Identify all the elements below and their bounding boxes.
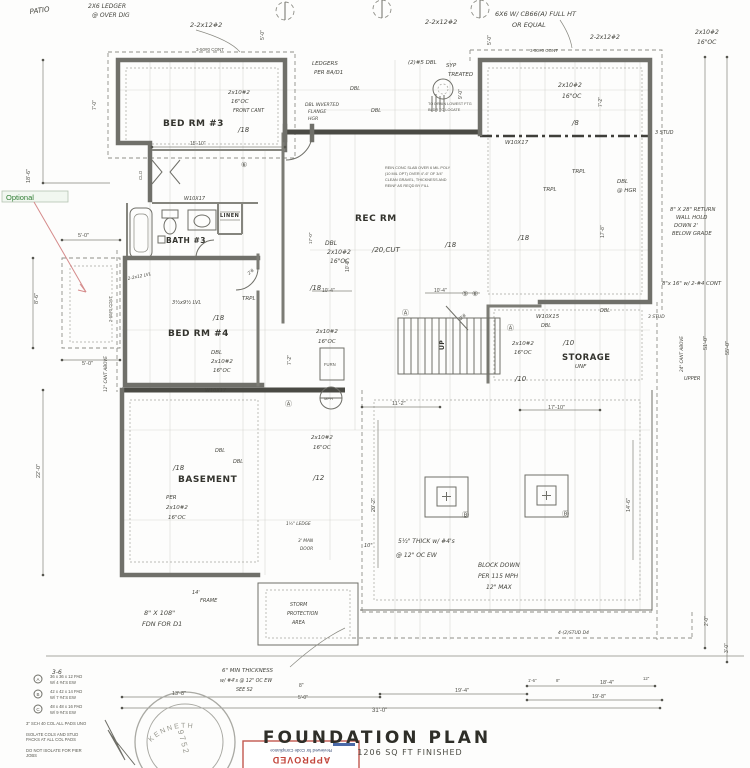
dim-5-0-t1: 5'-0" bbox=[260, 30, 266, 40]
sheet-title: FOUNDATION PLAN bbox=[263, 728, 491, 748]
stairs bbox=[398, 306, 500, 374]
legend-note-col: 3" SCH 40 COL ALL PADS UNO bbox=[26, 721, 87, 726]
note-joist-bed3-1: 2x10#2 bbox=[228, 90, 250, 96]
note-return-4: BELOW GRADE bbox=[672, 231, 712, 237]
dim-3-0: 3'-0" bbox=[724, 643, 730, 653]
mark-18-rec-left: /18 bbox=[309, 284, 322, 292]
room-furn: FURN bbox=[324, 362, 336, 367]
note-hgr-3: HGR bbox=[308, 116, 318, 122]
mark-18-bed4: /18 bbox=[212, 314, 225, 322]
mark-circ-6: ⑥ bbox=[241, 161, 247, 169]
optional-callout: Optional bbox=[2, 191, 86, 292]
note-joist-f-2: 16"OC bbox=[318, 339, 336, 345]
note-storm-1: STORM bbox=[290, 602, 308, 608]
dimension-ticks bbox=[32, 56, 729, 710]
dim-17-0: 17'-0" bbox=[308, 232, 313, 244]
note-slab-4: REINF AS REQD BY FILL bbox=[385, 184, 429, 188]
dimension-lines bbox=[32, 56, 744, 710]
note-beam-tc: 2-2x12#2 bbox=[425, 18, 457, 26]
note-return-3: DOWN 2' bbox=[674, 223, 698, 229]
note-storm-3: AREA bbox=[291, 620, 305, 626]
foundation-plan-drawing: Optional A 36 x 36 x 12 PAD W/ 4 #4'S EW… bbox=[0, 0, 750, 768]
note-post-2: OR EQUAL bbox=[512, 21, 546, 29]
note-syp-1: SYP bbox=[446, 63, 457, 69]
mark-circ-b1: Ⓑ bbox=[462, 511, 469, 519]
dim-5-0-t2: 5'-0" bbox=[487, 35, 493, 45]
note-trpl-2: TRPL bbox=[543, 187, 557, 193]
mark-12-c: /12 bbox=[312, 474, 325, 482]
room-storage: STORAGE bbox=[562, 353, 611, 363]
engineer-seal: KENNETH 9752 bbox=[135, 692, 235, 768]
note-fdn-2: FDN FOR D1 bbox=[142, 620, 182, 628]
note-joist-st-1: 2x10#2 bbox=[512, 341, 534, 347]
note-sump-1: TO DRAIN LOWEST FTG bbox=[428, 102, 472, 106]
note-per-2: 2x10#2 bbox=[166, 505, 188, 511]
legend-mark-a: A bbox=[36, 677, 39, 682]
note-dbl-st-2: DBL bbox=[600, 308, 610, 314]
mark-18-rec-mid: /18 bbox=[444, 241, 457, 249]
note-joist-rec-1: 2x10#2 bbox=[558, 82, 582, 89]
dim-18-6: 18'-6" bbox=[26, 169, 32, 183]
note-slab-1: REIN CONC SLAB OVER 6 MIL POLY bbox=[385, 166, 451, 170]
note-cont-patio: 2-50#0 CONT bbox=[108, 295, 113, 322]
dim-12-a: 12" bbox=[643, 676, 650, 681]
dim-1-6: 1'-6" bbox=[528, 678, 537, 683]
optional-arrow bbox=[34, 202, 86, 292]
note-slab-2: (10 MIL OPT) OVER 4"-6" OF 3/4" bbox=[385, 172, 444, 176]
approved-stamp-subtitle: Reviewed for Code Compliance bbox=[270, 748, 332, 753]
mark-circ-b2: Ⓑ bbox=[562, 510, 569, 518]
legend-mark-b: B bbox=[36, 692, 39, 697]
note-syp-2: TREATED bbox=[448, 72, 473, 78]
note-trpl-1: TRPL bbox=[572, 169, 586, 175]
mark-circ-a1: Ⓐ bbox=[402, 309, 409, 317]
note-storm-2: PROTECTION bbox=[287, 611, 318, 617]
note-joist-f-1: 2x10#2 bbox=[316, 329, 338, 335]
legend-a-line2: W/ 4 #4'S EW bbox=[50, 680, 76, 685]
mark-8-rec: /8 bbox=[571, 119, 579, 127]
dim-10-4-a: 10'-4" bbox=[322, 288, 335, 294]
legend-c-line1: 48 x 48 x 16 PAD bbox=[50, 704, 82, 709]
note-block-2: PER 115 MPH bbox=[478, 573, 519, 580]
dim-55-0: 55'-0" bbox=[725, 341, 731, 355]
note-lvl-2: 2-2x12 LVL bbox=[127, 271, 152, 282]
note-3stud-top: 3 STUD bbox=[655, 130, 674, 136]
note-block-1: BLOCK DOWN bbox=[478, 562, 520, 569]
dim-bed3-width: 15'-10" bbox=[190, 141, 206, 147]
note-ledger-2: @ OVER DIG bbox=[92, 12, 130, 19]
note-joist-tr-2: 16"OC bbox=[697, 39, 717, 46]
note-joist-st-2: 16"OC bbox=[514, 350, 532, 356]
note-ledger-1: 2X6 LEDGER bbox=[88, 3, 126, 10]
footing-dashed-lines bbox=[62, 50, 692, 640]
note-hgr-2: FLANGE bbox=[308, 109, 326, 115]
note-per-1: PER bbox=[166, 495, 177, 501]
note-joist-tr-1: 2x10#2 bbox=[695, 29, 719, 36]
note-3stud-r: 3 STUD bbox=[648, 314, 665, 320]
dim-19-8: 19'-8" bbox=[592, 694, 606, 700]
sheet-subtitle: 1206 SQ FT FINISHED bbox=[357, 748, 462, 757]
note-cant-r: 24" CANT ABOVE bbox=[679, 336, 684, 372]
note-beam-tl: 2-2x12#2 bbox=[190, 21, 222, 29]
dim-2-0: 2'-0" bbox=[704, 616, 710, 626]
optional-tag-label: Optional bbox=[6, 193, 34, 202]
mark-mph: MPH bbox=[324, 396, 333, 401]
dim-7-2-b: 7'-2" bbox=[287, 355, 293, 365]
note-joist-c-1: 2x10#2 bbox=[311, 435, 333, 441]
note-patio: PATIO bbox=[29, 5, 50, 16]
room-bed4: BED RM #4 bbox=[168, 329, 229, 339]
note-3-6: 3-6 bbox=[52, 669, 62, 676]
note-dbl-rec-1: DBL bbox=[325, 240, 337, 247]
note-w10x17-bath: W10X17 bbox=[184, 196, 206, 202]
note-14ft: 14' bbox=[192, 590, 200, 596]
note-block-3: 12" MAX bbox=[486, 584, 513, 591]
note-ledge: 1½" LEDGE bbox=[286, 520, 311, 527]
dim-5-0-a: 5'-0" bbox=[78, 233, 89, 239]
note-upper: UPPER bbox=[684, 376, 700, 382]
note-dbl-rec-2: 2x10#2 bbox=[327, 249, 351, 256]
note-joist-bed3-3: FRONT CANT bbox=[233, 108, 265, 114]
mark-18-bed3: /18 bbox=[237, 126, 250, 134]
note-trpl-3: TRPL bbox=[242, 296, 256, 302]
note-per-3: 16"OC bbox=[168, 515, 186, 521]
note-thick-3: SEE S2 bbox=[236, 687, 253, 693]
note-w10x17-base: W10X17 bbox=[205, 388, 227, 394]
note-dbl-bed4-3: 16"OC bbox=[213, 368, 231, 374]
dim-11-2: 11'-2" bbox=[392, 401, 406, 407]
note-joist-c-2: 16"OC bbox=[313, 445, 331, 451]
footing-pads bbox=[425, 475, 568, 517]
note-cont-tr: 3-50#0 CONT bbox=[530, 48, 558, 53]
note-studs-br: 4-(2)STUD D4 bbox=[558, 630, 589, 636]
legend-mark-c: C bbox=[36, 707, 40, 712]
note-cant-patio: 12" CANT ABOVE bbox=[103, 356, 108, 392]
note-return-2: WALL HOLD bbox=[676, 215, 707, 221]
note-dbl-2: DBL bbox=[371, 108, 381, 114]
mark-circ-6b: ⑥ bbox=[472, 290, 478, 298]
dim-20-2: 20'-2" bbox=[371, 498, 377, 512]
note-hgr-1: DBL INVERTED bbox=[305, 102, 339, 108]
mark-10-st-2: /10 bbox=[514, 375, 527, 383]
legend-c-line2: W/ 9 #4'S EW bbox=[50, 710, 76, 715]
seal-number: 9752 bbox=[176, 729, 191, 756]
note-dbl-hgr-2: @ HGR bbox=[617, 188, 637, 194]
note-8x16: 8"x 16" w/ 2-#4 CONT bbox=[662, 281, 722, 287]
dim-10-4-b: 10'-4" bbox=[434, 288, 447, 294]
mark-18-rec-right: /18 bbox=[517, 234, 530, 242]
dim-9-0: 9'-0" bbox=[458, 89, 464, 99]
note-dbl-bed4-1: DBL bbox=[211, 350, 222, 356]
note-mandoor-2: DOOR bbox=[300, 546, 313, 552]
note-clo: CLO bbox=[138, 170, 143, 180]
note-post-1: 6X6 W/ CB66(A) FULL HT bbox=[495, 10, 577, 18]
dim-18-4: 18'-4" bbox=[600, 680, 614, 686]
legend-b-line2: W/ 7 #4'S EW bbox=[50, 695, 76, 700]
note-joist-bed3-2: 16"OC bbox=[231, 99, 249, 105]
mark-circ-a3: Ⓐ bbox=[285, 400, 292, 408]
note-cont-tl: 3-50#0 CONT bbox=[196, 47, 224, 52]
note-w10x17-rec: W10X17 bbox=[505, 140, 529, 146]
mark-10-st-1: /10 bbox=[562, 339, 575, 347]
dim-51-0: 51'-0" bbox=[703, 336, 709, 350]
room-up: UP bbox=[439, 340, 446, 350]
dim-10-0: 10'-0" bbox=[345, 259, 351, 272]
legend-note-iso2: PACKS AT ALL COL PADS bbox=[26, 737, 76, 742]
note-slab2-1: 5½" THICK w/ #4's bbox=[398, 538, 455, 545]
dim-31-0: 31'-0" bbox=[372, 708, 387, 714]
note-w10x15: W10X15 bbox=[536, 314, 560, 320]
note-ledgers-2: PER 8A/D1 bbox=[314, 70, 343, 76]
dim-7-0: 7'-0" bbox=[92, 100, 98, 110]
dim-13-8: 13'-8" bbox=[172, 691, 186, 697]
note-storage-unf: UNF bbox=[575, 364, 587, 370]
room-bed3: BED RM #3 bbox=[163, 119, 224, 129]
dim-22-0: 22'-0" bbox=[36, 464, 42, 478]
note-dbl-1: DBL bbox=[350, 86, 360, 92]
note-ledgers-1: LEDGERS bbox=[312, 61, 338, 67]
room-linen: LINEN bbox=[220, 213, 239, 219]
note-10in: 10" bbox=[364, 543, 373, 549]
dim-14-6: 14'-6" bbox=[626, 498, 632, 512]
mark-20cut: /20,CUT bbox=[371, 246, 401, 254]
note-return-1: 8" X 28" RETURN bbox=[670, 207, 715, 213]
note-thick-2: w/ #4's @ 12" OC EW bbox=[220, 678, 272, 684]
note-slab2-2: @ 12" OC EW bbox=[396, 552, 438, 559]
legend-note-pier2: JOBS bbox=[26, 753, 37, 758]
note-dbl-st-1: DBL bbox=[541, 323, 551, 329]
note-dbl-base-1: DBL bbox=[215, 448, 225, 454]
floor-drain-icon bbox=[158, 236, 165, 243]
dim-8-b: 8" bbox=[299, 683, 304, 689]
dim-19-4: 19'-4" bbox=[455, 688, 469, 694]
dim-8-6: 8'-6" bbox=[34, 293, 40, 304]
dim-8-a: 8" bbox=[556, 678, 560, 683]
note-slab-3: CLEAN GRAVEL, THICKNESS AND bbox=[385, 178, 447, 182]
mark-circ-5: ⑤ bbox=[462, 290, 468, 298]
mark-18-base: /18 bbox=[172, 464, 185, 472]
approved-stamp-title: APPROVED bbox=[272, 755, 331, 765]
sink-icon bbox=[194, 215, 210, 227]
mark-circ-a2: Ⓐ bbox=[507, 324, 514, 332]
room-bath3: BATH #3 bbox=[166, 236, 206, 245]
note-25dbl: (2)#5 DBL bbox=[408, 60, 437, 66]
note-sump-2: BLDR TO LOCATE bbox=[428, 108, 461, 112]
foundation-plan-sheet: Optional A 36 x 36 x 12 PAD W/ 4 #4'S EW… bbox=[0, 0, 750, 768]
legend-b-line1: 42 x 42 x 14 PAD bbox=[50, 689, 82, 694]
note-dbl-bed4-2: 2x10#2 bbox=[211, 359, 233, 365]
dim-5-0-b: 5'-0" bbox=[82, 361, 93, 367]
room-rec: REC RM bbox=[355, 214, 397, 224]
note-mandoor-1: 3' MAN bbox=[298, 538, 314, 544]
note-thick-1: 6" MIN THICKNESS bbox=[222, 668, 273, 674]
dim-17-8: 17'-8" bbox=[600, 225, 606, 238]
note-joist-rec-2: 16"OC bbox=[562, 93, 582, 100]
note-frame: FRAME bbox=[200, 598, 218, 604]
note-dbl-hgr-1: DBL bbox=[617, 179, 628, 185]
pad-legend: A 36 x 36 x 12 PAD W/ 4 #4'S EW B 42 x 4… bbox=[26, 674, 87, 758]
note-beam-tr: 2-2x12#2 bbox=[590, 34, 620, 41]
signature-squiggle bbox=[105, 720, 135, 765]
note-fdn-1: 8" X 108" bbox=[144, 609, 175, 617]
dim-5-0-c: 5'-0" bbox=[298, 695, 308, 701]
room-basement: BASEMENT bbox=[178, 475, 238, 485]
dim-17-10: 17'-10" bbox=[548, 405, 565, 411]
note-lvl-1: 3½x9½ LVL bbox=[172, 299, 201, 306]
note-dbl-base-2: DBL bbox=[233, 459, 243, 465]
note-2-8-a: 2'8 bbox=[246, 267, 255, 276]
dim-7-2-a: 7'-2" bbox=[598, 97, 604, 107]
bathtub-icon bbox=[130, 208, 152, 258]
